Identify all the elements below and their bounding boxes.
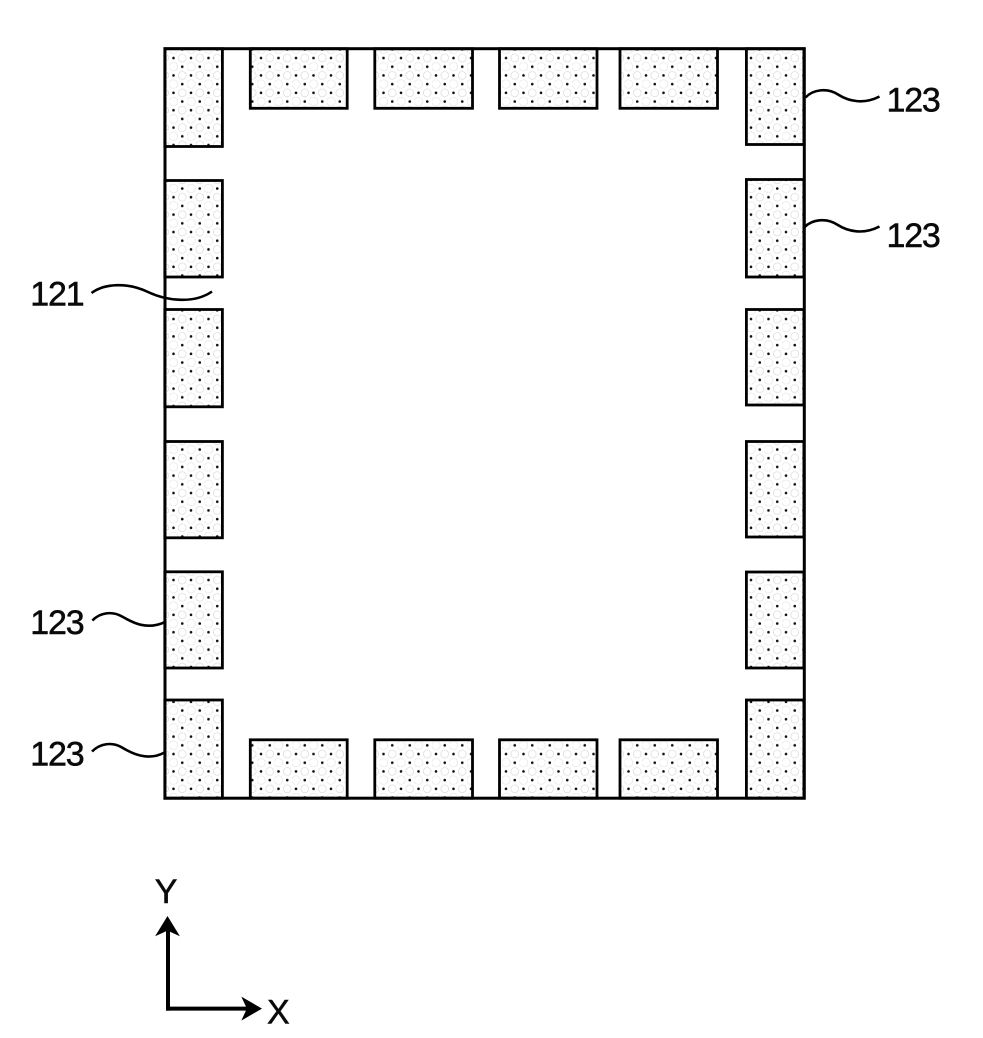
svg-text:123: 123 [30, 736, 83, 774]
svg-text:123: 123 [30, 604, 83, 642]
svg-text:123: 123 [887, 217, 940, 255]
svg-text:X: X [267, 994, 290, 1032]
svg-text:121: 121 [30, 276, 83, 314]
svg-text:Y: Y [155, 873, 178, 911]
svg-text:123: 123 [887, 81, 940, 119]
